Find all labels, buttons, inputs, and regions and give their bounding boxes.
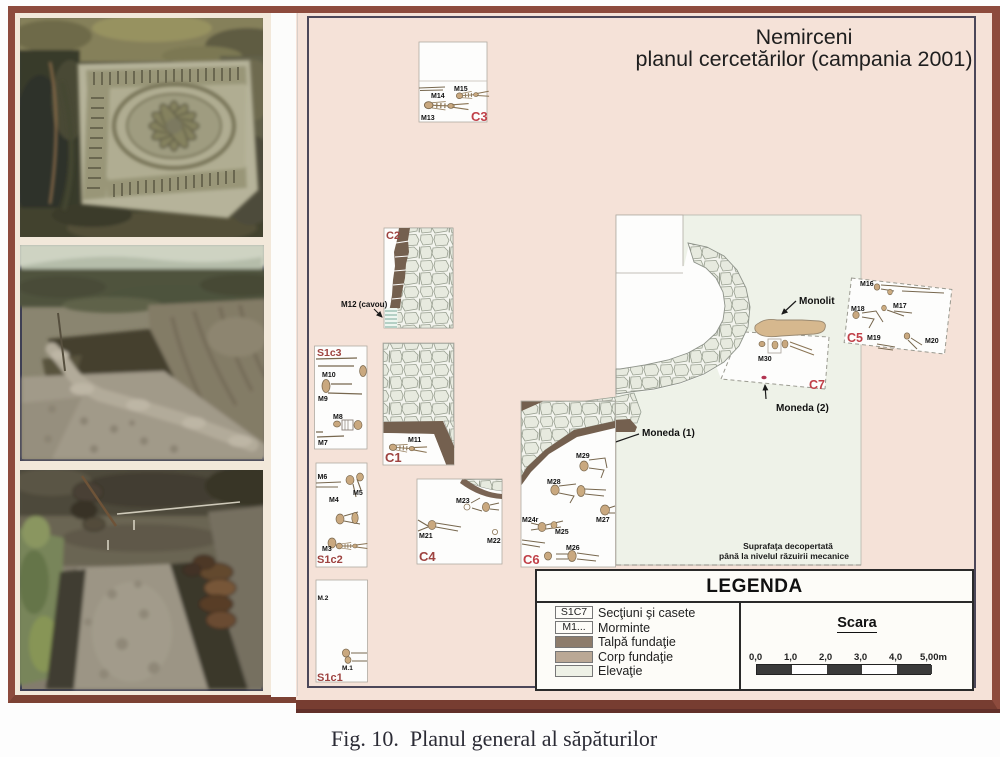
svg-text:C6: C6	[523, 552, 540, 567]
svg-text:M12 (cavou): M12 (cavou)	[341, 300, 388, 309]
svg-text:Monolit: Monolit	[799, 296, 835, 307]
svg-text:M21: M21	[419, 533, 433, 540]
svg-text:M30: M30	[758, 356, 772, 363]
svg-text:M16: M16	[860, 281, 874, 288]
svg-text:C5: C5	[847, 331, 863, 345]
svg-text:C3: C3	[471, 109, 488, 124]
svg-text:M25: M25	[555, 529, 569, 536]
svg-text:C1: C1	[385, 450, 402, 465]
svg-text:M11: M11	[408, 437, 421, 444]
svg-text:M4: M4	[329, 497, 339, 504]
svg-text:S1c3: S1c3	[317, 347, 342, 359]
svg-text:Moneda (2): Moneda (2)	[776, 403, 829, 414]
svg-text:M.2: M.2	[318, 595, 329, 602]
svg-text:M24r: M24r	[522, 517, 539, 524]
svg-text:C2: C2	[386, 230, 400, 242]
svg-text:Suprafaţa decopertată: Suprafaţa decopertată	[743, 541, 833, 551]
svg-text:M13: M13	[421, 115, 435, 122]
svg-text:M3: M3	[322, 546, 332, 553]
svg-text:M8: M8	[333, 414, 343, 421]
svg-text:M29: M29	[576, 453, 590, 460]
svg-text:M14: M14	[431, 93, 445, 100]
svg-text:M23: M23	[456, 498, 470, 505]
svg-text:M15: M15	[454, 86, 468, 93]
svg-text:M19: M19	[867, 335, 881, 342]
svg-text:S1c2: S1c2	[317, 554, 343, 566]
svg-text:M.1: M.1	[342, 665, 353, 672]
svg-text:M6: M6	[318, 474, 328, 481]
svg-text:M17: M17	[893, 303, 907, 310]
svg-text:M7: M7	[318, 440, 328, 447]
svg-text:M22: M22	[487, 538, 501, 545]
svg-text:C4: C4	[419, 549, 436, 564]
svg-text:M10: M10	[322, 372, 336, 379]
svg-text:M20: M20	[925, 338, 939, 345]
svg-text:M9: M9	[318, 396, 328, 403]
svg-text:S1c1: S1c1	[317, 672, 343, 684]
svg-text:C7: C7	[809, 378, 825, 392]
svg-text:M5: M5	[353, 490, 363, 497]
svg-text:până la nivelul răzuirii mecan: până la nivelul răzuirii mecanice	[719, 551, 849, 561]
svg-text:Moneda (1): Moneda (1)	[642, 428, 695, 439]
svg-text:M27: M27	[596, 517, 610, 524]
